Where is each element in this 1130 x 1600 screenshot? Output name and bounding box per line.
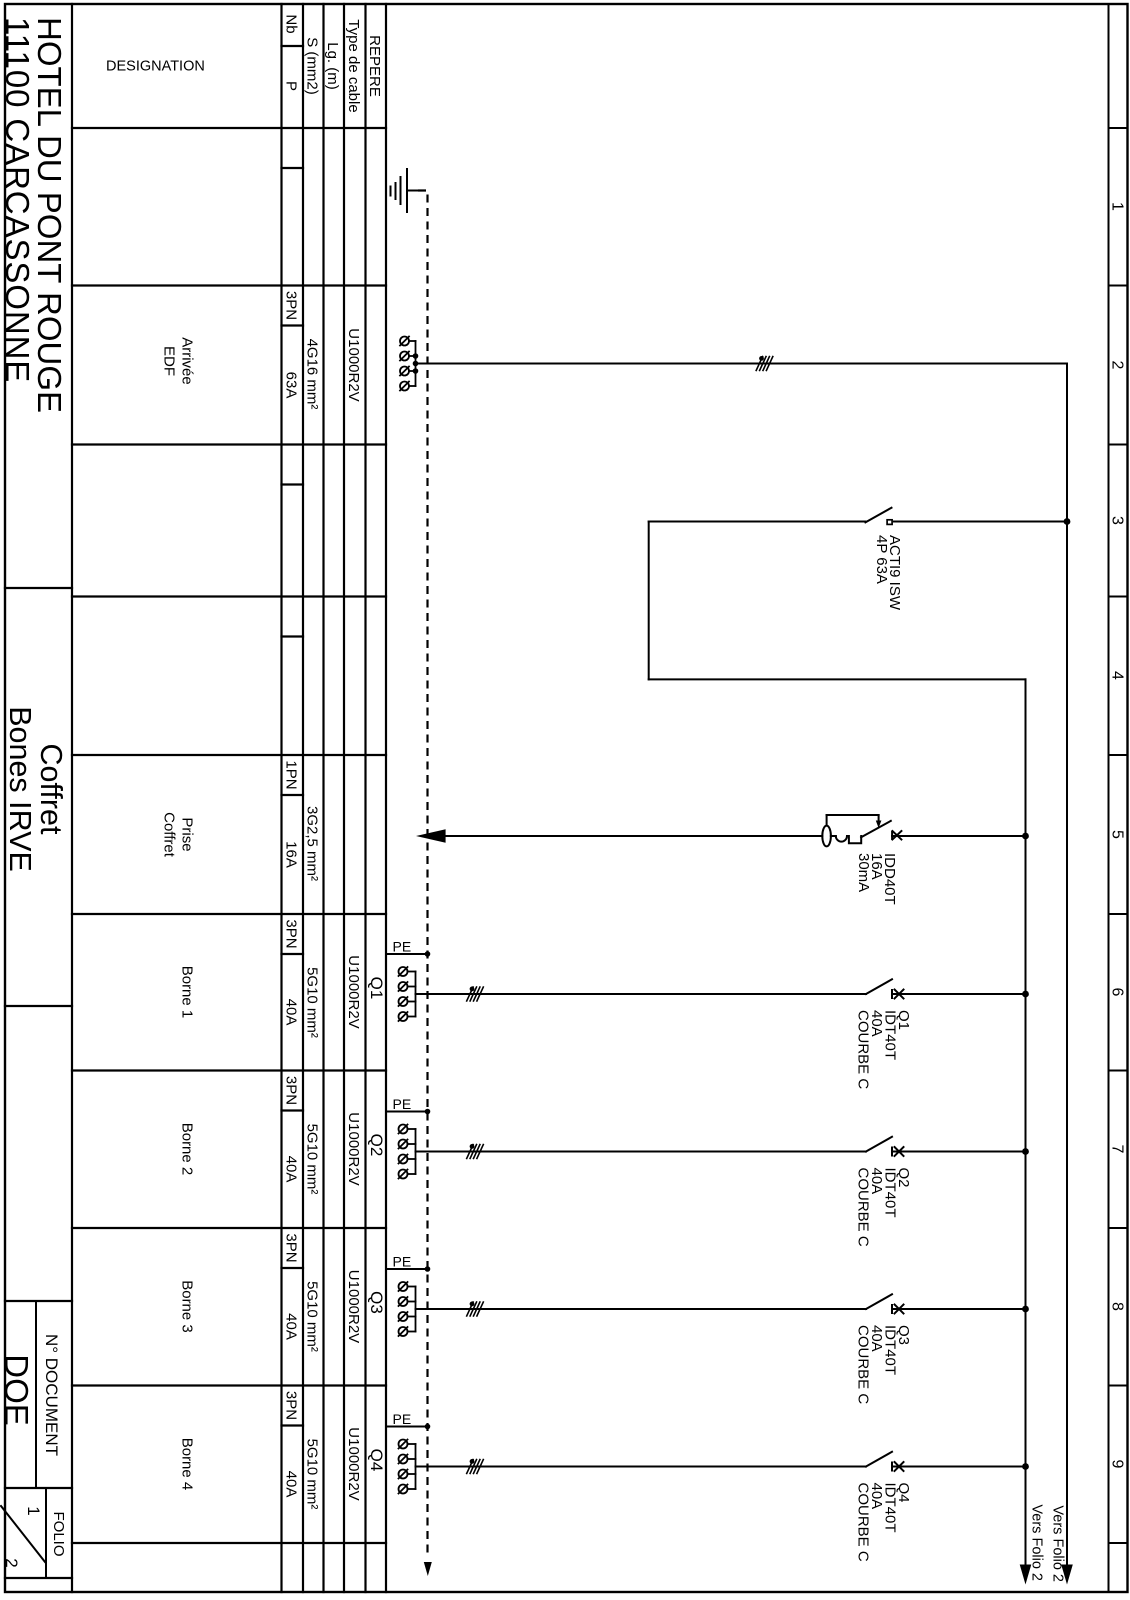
- svg-text:3PN: 3PN: [283, 1391, 300, 1420]
- svg-text:P: P: [283, 81, 300, 91]
- svg-text:40A: 40A: [283, 1471, 300, 1498]
- svg-text:Arrivée: Arrivée: [179, 337, 196, 385]
- svg-text:Lg. (m): Lg. (m): [324, 42, 341, 90]
- svg-text:40A: 40A: [283, 1313, 300, 1340]
- svg-text:16A: 16A: [283, 841, 300, 868]
- svg-text:EDF: EDF: [161, 346, 178, 376]
- svg-text:Type de cable: Type de cable: [345, 19, 362, 112]
- svg-text:8: 8: [1109, 1302, 1126, 1311]
- svg-text:U1000R2V: U1000R2V: [345, 1112, 362, 1185]
- svg-text:1PN: 1PN: [283, 760, 300, 789]
- svg-text:DESIGNATION: DESIGNATION: [106, 59, 205, 75]
- svg-text:3PN: 3PN: [283, 1233, 300, 1262]
- svg-text:U1000R2V: U1000R2V: [345, 1427, 362, 1500]
- svg-text:PE: PE: [393, 1411, 412, 1427]
- svg-text:COURBE C: COURBE C: [855, 1010, 872, 1089]
- svg-text:40A: 40A: [283, 1156, 300, 1183]
- svg-text:6: 6: [1109, 988, 1126, 997]
- svg-text:Bones IRVE: Bones IRVE: [3, 706, 37, 872]
- svg-text:Nb: Nb: [283, 14, 300, 33]
- svg-text:DOE: DOE: [0, 1354, 35, 1426]
- svg-text:U1000R2V: U1000R2V: [345, 328, 362, 401]
- svg-text:Vers Folio 2: Vers Folio 2: [1050, 1505, 1066, 1582]
- svg-text:5: 5: [1109, 830, 1126, 839]
- svg-text:5G10 mm²: 5G10 mm²: [304, 967, 321, 1038]
- svg-text:5G10 mm²: 5G10 mm²: [304, 1439, 321, 1510]
- svg-text:Coffret: Coffret: [34, 744, 68, 836]
- svg-text:40A: 40A: [283, 999, 300, 1026]
- svg-text:Vers Folio 2: Vers Folio 2: [1029, 1504, 1045, 1581]
- svg-text:3G2,5 mm²: 3G2,5 mm²: [304, 806, 321, 881]
- svg-text:COURBE C: COURBE C: [855, 1325, 872, 1404]
- svg-text:Q1: Q1: [367, 977, 386, 1000]
- svg-text:3: 3: [1109, 516, 1126, 525]
- svg-text:COURBE C: COURBE C: [855, 1483, 872, 1562]
- svg-text:11100 CARCASSONNE: 11100 CARCASSONNE: [0, 17, 36, 383]
- svg-text:Prise: Prise: [179, 817, 196, 851]
- svg-text:PE: PE: [393, 1096, 412, 1112]
- svg-text:4G16 mm²: 4G16 mm²: [304, 339, 321, 410]
- svg-text:30mA: 30mA: [855, 853, 872, 892]
- svg-text:PE: PE: [393, 1254, 412, 1270]
- svg-text:Borne 4: Borne 4: [179, 1438, 196, 1491]
- svg-text:1: 1: [24, 1506, 43, 1515]
- svg-text:4: 4: [1109, 671, 1126, 680]
- svg-text:3PN: 3PN: [283, 291, 300, 320]
- svg-text:Q2: Q2: [367, 1134, 386, 1157]
- svg-text:1: 1: [1109, 202, 1126, 211]
- svg-text:N° DOCUMENT: N° DOCUMENT: [42, 1334, 61, 1456]
- svg-text:S (mm2): S (mm2): [304, 37, 321, 95]
- svg-text:5G10 mm²: 5G10 mm²: [304, 1281, 321, 1352]
- svg-text:4P 63A: 4P 63A: [873, 535, 890, 584]
- svg-text:Coffret: Coffret: [161, 812, 178, 858]
- svg-text:3PN: 3PN: [283, 1076, 300, 1105]
- svg-text:REPERE: REPERE: [366, 35, 383, 97]
- svg-text:Borne 1: Borne 1: [179, 966, 196, 1019]
- svg-text:7: 7: [1109, 1145, 1126, 1154]
- svg-text:Borne 3: Borne 3: [179, 1280, 196, 1333]
- svg-text:Borne 2: Borne 2: [179, 1123, 196, 1176]
- svg-text:63A: 63A: [283, 372, 300, 399]
- svg-text:Q3: Q3: [367, 1291, 386, 1314]
- svg-text:U1000R2V: U1000R2V: [345, 955, 362, 1028]
- svg-text:PE: PE: [393, 939, 412, 955]
- svg-text:3PN: 3PN: [283, 919, 300, 948]
- svg-text:2: 2: [1109, 361, 1126, 370]
- svg-text:Q4: Q4: [367, 1449, 386, 1472]
- svg-text:5G10 mm²: 5G10 mm²: [304, 1124, 321, 1195]
- svg-text:2: 2: [2, 1558, 21, 1567]
- svg-text:COURBE C: COURBE C: [855, 1168, 872, 1247]
- svg-text:FOLIO: FOLIO: [50, 1511, 67, 1556]
- svg-text:U1000R2V: U1000R2V: [345, 1270, 362, 1343]
- svg-text:9: 9: [1109, 1460, 1126, 1469]
